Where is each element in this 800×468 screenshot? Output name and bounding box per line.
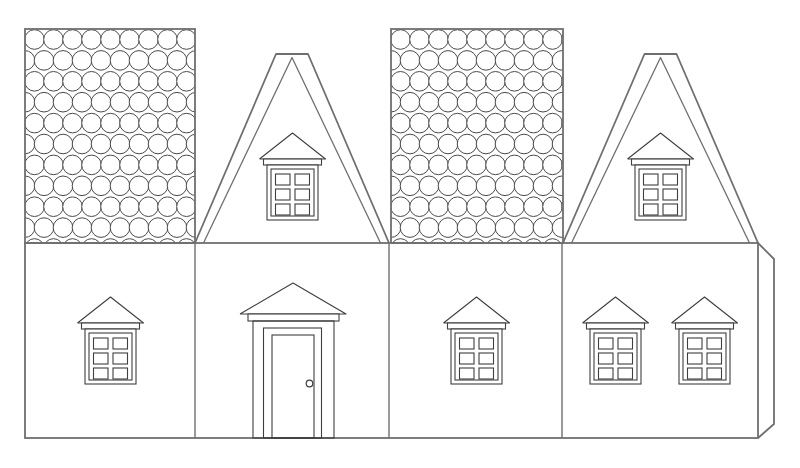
window-lintel [676, 323, 734, 329]
shingle-scale [514, 134, 534, 154]
shingle-scale [400, 218, 420, 238]
shingle-scale [562, 72, 582, 92]
shingle-scale [372, 155, 392, 175]
shingle-scale [101, 155, 121, 175]
house-template-drawing [0, 0, 800, 468]
shingle-scale [25, 155, 45, 175]
shingle-scale [410, 113, 430, 133]
shingle-scale [495, 51, 515, 71]
shingle-scale [533, 134, 553, 154]
shingle-scale [53, 92, 73, 112]
shingle-scale [0, 218, 16, 238]
shingle-scale [148, 51, 168, 71]
shingle-scale [167, 218, 187, 238]
shingle-scale [419, 134, 439, 154]
shingle-scale [6, 113, 26, 133]
shingle-scale [91, 51, 111, 71]
shingle-scale [91, 92, 111, 112]
shingle-scale [72, 134, 92, 154]
shingle-scale [44, 155, 64, 175]
shingle-scale [457, 51, 477, 71]
shingle-scale [505, 197, 525, 217]
shingle-scale [0, 134, 16, 154]
shingle-scale [0, 176, 16, 196]
shingle-scale [419, 218, 439, 238]
shingle-scale [391, 72, 411, 92]
shingle-scale [91, 134, 111, 154]
shingle-scale [72, 51, 92, 71]
roof-panel-left [0, 29, 215, 258]
shingle-scale [6, 30, 26, 50]
shingle-scale [25, 197, 45, 217]
shingle-scale [410, 30, 430, 50]
shingle-scale [6, 155, 26, 175]
shingle-scale [448, 72, 468, 92]
shingle-scale [524, 155, 544, 175]
shingle-scale [419, 176, 439, 196]
shingle-scale [476, 134, 496, 154]
shingle-scale [391, 113, 411, 133]
roof-panel-right [362, 29, 591, 258]
shingle-scale [514, 51, 534, 71]
shingle-scale [467, 197, 487, 217]
shingle-scale [533, 51, 553, 71]
shingle-scale [457, 134, 477, 154]
shingle-scale [34, 51, 54, 71]
shingle-scale [167, 92, 187, 112]
shingle-scale [167, 134, 187, 154]
shingle-scale [400, 51, 420, 71]
shingle-scale [6, 197, 26, 217]
shingle-scale [148, 176, 168, 196]
shingle-scale [101, 72, 121, 92]
door-knob [306, 380, 313, 387]
shingle-scale [158, 72, 178, 92]
window-frame [635, 165, 686, 220]
shingle-scale [44, 30, 64, 50]
shingle-scale [158, 155, 178, 175]
shingle-scale [514, 92, 534, 112]
shingle-scale [177, 197, 197, 217]
shingle-scale [429, 197, 449, 217]
shingle-scale [448, 113, 468, 133]
shingle-scale [362, 92, 382, 112]
shingle-scale [543, 239, 563, 259]
shingle-scale [495, 218, 515, 238]
shingle-scale [148, 218, 168, 238]
wall-window-2 [444, 297, 510, 384]
shingle-scale [429, 113, 449, 133]
window-lintel [632, 159, 690, 165]
shingle-scale [448, 155, 468, 175]
shingle-scale [158, 30, 178, 50]
shingle-scale [63, 30, 83, 50]
shingle-scale [72, 92, 92, 112]
wall-window-1 [78, 297, 144, 384]
shingle-scale [148, 92, 168, 112]
shingle-scale [196, 155, 216, 175]
shingle-scale [158, 239, 178, 259]
window-lintel [82, 323, 140, 329]
shingle-scale [6, 72, 26, 92]
window-frame [590, 329, 641, 384]
shingle-scale [372, 30, 392, 50]
shingle-scale [34, 176, 54, 196]
shingle-scale [391, 30, 411, 50]
shingle-scale [91, 218, 111, 238]
shingle-scale [82, 197, 102, 217]
shingle-scale [438, 92, 458, 112]
shingle-scale [0, 51, 16, 71]
window-frame [451, 329, 502, 384]
attic-window [628, 133, 694, 220]
shingle-scale [457, 92, 477, 112]
shingle-scale [438, 218, 458, 238]
shingle-scale [72, 218, 92, 238]
front-door [240, 283, 346, 438]
shingle-scale [543, 155, 563, 175]
shingle-scale [34, 92, 54, 112]
shingle-scale [177, 239, 197, 259]
shingle-scale [505, 239, 525, 259]
shingle-scale [533, 218, 553, 238]
shingle-scale [448, 30, 468, 50]
wall-window-3 [583, 297, 649, 384]
shingle-scale [186, 218, 206, 238]
shingle-scale [476, 218, 496, 238]
shingle-scale [82, 239, 102, 259]
shingle-scale [467, 30, 487, 50]
shingle-scale [139, 155, 159, 175]
shingle-scale [362, 51, 382, 71]
shingle-scale [186, 134, 206, 154]
shingle-scale [0, 92, 16, 112]
shingle-scale [438, 176, 458, 196]
shingle-scale [524, 113, 544, 133]
shingle-scale [120, 30, 140, 50]
shingle-scale [110, 92, 130, 112]
shingle-scale [120, 155, 140, 175]
shingle-scale [82, 72, 102, 92]
shingle-scale [571, 134, 591, 154]
window-lintel [448, 323, 506, 329]
shingle-scale [457, 218, 477, 238]
shingle-scale [486, 239, 506, 259]
shingle-scale [120, 113, 140, 133]
shingle-scale [467, 72, 487, 92]
shingle-scale [63, 113, 83, 133]
shingle-scale [514, 176, 534, 196]
shingle-scale [486, 113, 506, 133]
window-pediment [583, 297, 649, 323]
shingle-scale [410, 72, 430, 92]
window-frame [267, 165, 318, 220]
shingle-scale [372, 113, 392, 133]
shingle-scale [25, 72, 45, 92]
shingle-scale [44, 197, 64, 217]
shingle-scale [101, 197, 121, 217]
shingle-scale [505, 113, 525, 133]
shingle-scale [362, 134, 382, 154]
shingle-scale [372, 72, 392, 92]
window-pediment [672, 297, 738, 323]
shingle-scale [25, 30, 45, 50]
shingle-scale [391, 239, 411, 259]
wall-band [25, 243, 774, 438]
shingle-scale [448, 197, 468, 217]
shingle-scale [44, 239, 64, 259]
shingle-scale [139, 72, 159, 92]
shingle-pattern [362, 30, 591, 259]
shingle-scale [129, 176, 149, 196]
shingle-scale [110, 176, 130, 196]
shingle-scale [120, 197, 140, 217]
shingle-scale [148, 134, 168, 154]
shingle-scale [129, 92, 149, 112]
shingle-scale [467, 239, 487, 259]
shingle-scale [552, 92, 572, 112]
shingle-scale [400, 134, 420, 154]
shingle-scale [82, 30, 102, 50]
shingle-scale [186, 51, 206, 71]
window-lintel [264, 159, 322, 165]
shingle-scale [505, 155, 525, 175]
shingle-scale [391, 197, 411, 217]
shingle-scale [410, 239, 430, 259]
shingle-scale [196, 239, 216, 259]
shingle-scale [552, 51, 572, 71]
gable-panel-right [563, 54, 758, 243]
shingle-scale [372, 197, 392, 217]
shingle-scale [486, 72, 506, 92]
shingle-scale [543, 72, 563, 92]
shingle-scale [562, 30, 582, 50]
shingle-scale [505, 30, 525, 50]
shingle-scale [486, 30, 506, 50]
shingle-scale [476, 51, 496, 71]
shingle-scale [562, 155, 582, 175]
shingle-scale [476, 176, 496, 196]
window-frame [679, 329, 730, 384]
shingle-scale [53, 218, 73, 238]
shingle-scale [524, 197, 544, 217]
shingle-scale [543, 113, 563, 133]
shingle-scale [63, 239, 83, 259]
shingle-scale [514, 218, 534, 238]
door-pediment [240, 283, 346, 314]
window-pediment [78, 297, 144, 323]
shingle-scale [177, 155, 197, 175]
shingle-scale [129, 218, 149, 238]
shingle-scale [419, 92, 439, 112]
wall-window-4 [672, 297, 738, 384]
shingle-scale [533, 176, 553, 196]
shingle-scale [53, 134, 73, 154]
window-pediment [444, 297, 510, 323]
shingle-scale [196, 72, 216, 92]
shingle-scale [53, 51, 73, 71]
shingle-scale [196, 197, 216, 217]
shingle-scale [129, 134, 149, 154]
shingle-scale [82, 155, 102, 175]
window-pediment [260, 133, 326, 159]
shingle-scale [505, 72, 525, 92]
shingle-scale [196, 113, 216, 133]
shingle-scale [495, 134, 515, 154]
shingle-scale [448, 239, 468, 259]
shingle-scale [495, 176, 515, 196]
shingle-scale [438, 51, 458, 71]
shingle-scale [186, 176, 206, 196]
shingle-scale [467, 155, 487, 175]
shingle-scale [25, 239, 45, 259]
shingle-scale [101, 239, 121, 259]
shingle-scale [177, 113, 197, 133]
shingle-scale [177, 72, 197, 92]
shingle-scale [429, 72, 449, 92]
shingle-scale [429, 155, 449, 175]
shingle-scale [53, 176, 73, 196]
shingle-scale [158, 113, 178, 133]
shingle-scale [91, 176, 111, 196]
shingle-scale [129, 51, 149, 71]
shingle-scale [110, 134, 130, 154]
window-frame [85, 329, 136, 384]
shingle-scale [543, 30, 563, 50]
shingle-scale [571, 92, 591, 112]
attic-window [260, 133, 326, 220]
shingle-scale [6, 239, 26, 259]
shingle-scale [457, 176, 477, 196]
shingle-scale [400, 92, 420, 112]
shingle-scale [63, 72, 83, 92]
shingle-scale [110, 51, 130, 71]
gable-panel-left [195, 54, 389, 243]
window-pediment [628, 133, 694, 159]
shingle-scale [486, 197, 506, 217]
shingle-scale [82, 113, 102, 133]
shingle-scale [400, 176, 420, 196]
shingle-scale [120, 72, 140, 92]
shingle-scale [139, 30, 159, 50]
shingle-scale [34, 218, 54, 238]
shingle-scale [167, 176, 187, 196]
shingle-scale [25, 113, 45, 133]
shingle-scale [196, 30, 216, 50]
shingle-scale [139, 113, 159, 133]
paper-house-template-sheet [0, 0, 800, 468]
shingle-scale [571, 218, 591, 238]
shingle-scale [429, 30, 449, 50]
glue-tab [758, 243, 774, 438]
shingle-scale [72, 176, 92, 196]
shingle-scale [101, 113, 121, 133]
shingle-scale [158, 197, 178, 217]
shingle-scale [429, 239, 449, 259]
shingle-scale [101, 30, 121, 50]
shingle-scale [495, 92, 515, 112]
shingle-pattern [0, 30, 215, 259]
shingle-scale [391, 155, 411, 175]
shingle-scale [533, 92, 553, 112]
shingle-scale [410, 155, 430, 175]
shingle-scale [63, 155, 83, 175]
shingle-scale [552, 176, 572, 196]
shingle-scale [571, 51, 591, 71]
shingle-scale [120, 239, 140, 259]
shingle-scale [110, 218, 130, 238]
shingle-scale [44, 72, 64, 92]
shingle-scale [34, 134, 54, 154]
shingle-scale [410, 197, 430, 217]
shingle-scale [63, 197, 83, 217]
shingle-scale [543, 197, 563, 217]
window-lintel [587, 323, 645, 329]
shingle-scale [552, 134, 572, 154]
shingle-scale [139, 197, 159, 217]
shingle-scale [44, 113, 64, 133]
shingle-scale [167, 51, 187, 71]
shingle-scale [562, 113, 582, 133]
shingle-scale [419, 51, 439, 71]
shingle-scale [476, 92, 496, 112]
door-lintel [248, 314, 339, 321]
shingle-scale [177, 30, 197, 50]
shingle-scale [186, 92, 206, 112]
shingle-scale [486, 155, 506, 175]
shingle-scale [524, 239, 544, 259]
shingle-scale [524, 72, 544, 92]
shingle-scale [438, 134, 458, 154]
shingle-scale [467, 113, 487, 133]
shingle-scale [139, 239, 159, 259]
shingle-scale [524, 30, 544, 50]
